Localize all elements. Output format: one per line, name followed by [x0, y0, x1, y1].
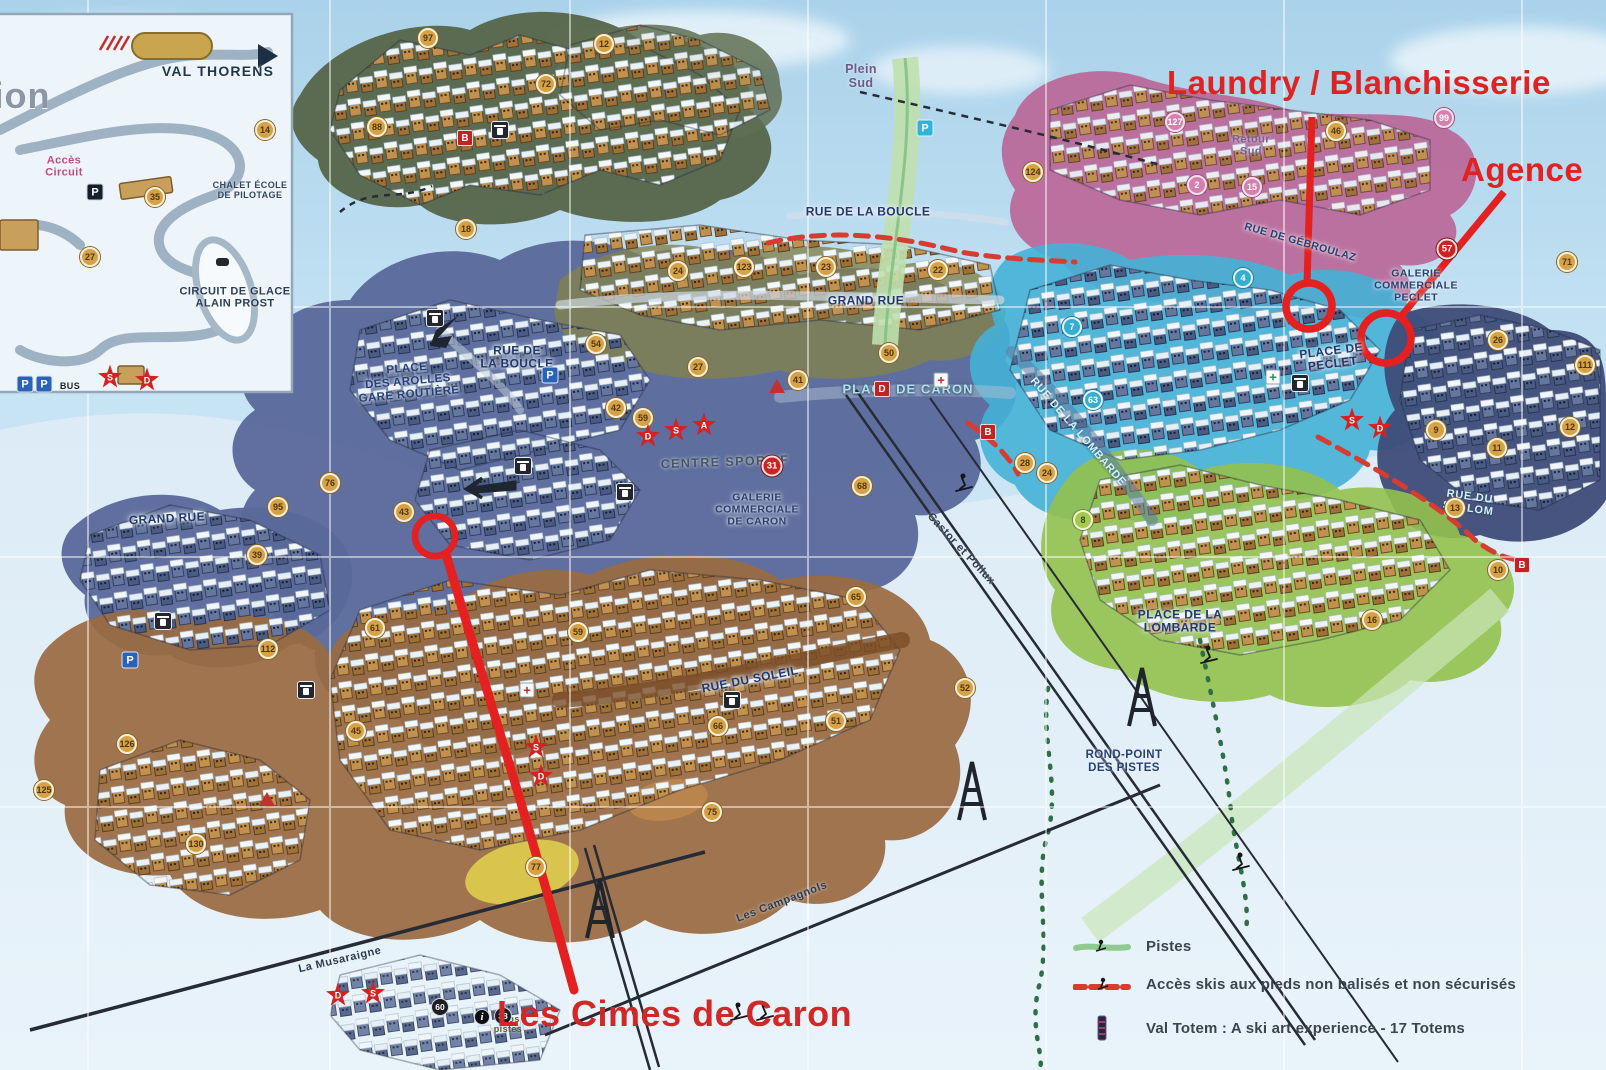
map-artwork — [0, 0, 1606, 1070]
legend-row-pistes: Pistes — [1072, 938, 1516, 955]
legend-row-acces: Accès skis aux pieds non balisés et non … — [1072, 976, 1516, 993]
legend-label: Pistes — [1146, 938, 1191, 955]
legend: Pistes Accès skis aux pieds non balisés … — [1072, 938, 1516, 1042]
totem-icon — [1072, 1014, 1132, 1042]
circuit-inset — [0, 14, 292, 392]
piste-line-icon — [1072, 939, 1132, 955]
annotation-cimes: Les Cimes de Caron — [497, 993, 852, 1035]
legend-label: Val Totem : A ski art experience - 17 To… — [1146, 1020, 1465, 1037]
ski-access-line-icon — [1072, 977, 1132, 993]
legend-row-totem: Val Totem : A ski art experience - 17 To… — [1072, 1014, 1516, 1042]
annotation-agence: Agence — [1461, 151, 1583, 189]
legend-label: Accès skis aux pieds non balisés et non … — [1146, 976, 1516, 993]
annotation-laundry: Laundry / Blanchisserie — [1167, 64, 1551, 102]
resort-map: ionVAL THORENSAccès CircuitCHALET ÉCOLE … — [0, 0, 1606, 1070]
